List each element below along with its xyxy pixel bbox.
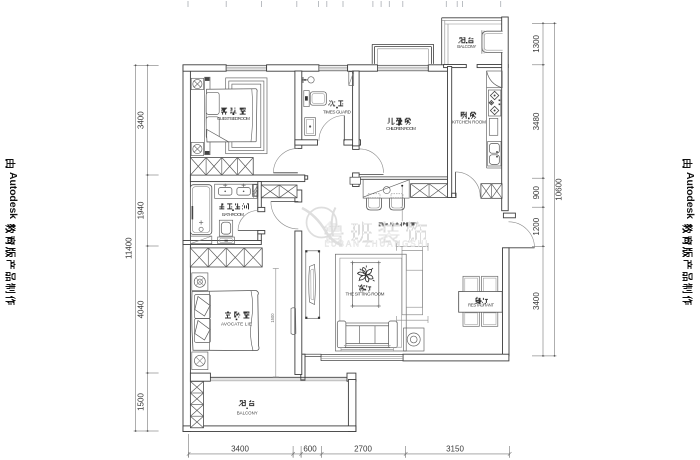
- svg-text:11400: 11400: [125, 237, 134, 259]
- svg-text:3480: 3480: [532, 112, 541, 130]
- svg-text:4040: 4040: [137, 300, 146, 318]
- svg-text:BALCONY: BALCONY: [237, 410, 258, 415]
- svg-text:Autodesk: Autodesk: [684, 172, 696, 219]
- svg-text:2700: 2700: [354, 445, 372, 454]
- svg-text:1300: 1300: [532, 34, 541, 52]
- svg-text:10600: 10600: [555, 178, 564, 201]
- svg-text:RESTAURANT: RESTAURANT: [468, 303, 494, 308]
- svg-text:CHILDREN ROOM: CHILDREN ROOM: [386, 126, 416, 131]
- svg-text:BALCONY: BALCONY: [457, 44, 476, 49]
- svg-text:Autodesk: Autodesk: [7, 172, 19, 219]
- svg-text:1940: 1940: [137, 201, 146, 219]
- svg-text:3400: 3400: [137, 111, 146, 129]
- svg-text:GUEST BEDROOM: GUEST BEDROOM: [217, 116, 250, 121]
- svg-text:AVOCATE LIE: AVOCATE LIE: [221, 321, 252, 326]
- svg-text:1500: 1500: [137, 393, 146, 411]
- svg-text:BATHROOM: BATHROOM: [222, 212, 244, 217]
- svg-text:1500: 1500: [270, 313, 275, 323]
- svg-text:3400: 3400: [231, 445, 249, 454]
- svg-text:TIMES GUARD: TIMES GUARD: [323, 109, 352, 114]
- svg-text:900: 900: [532, 185, 541, 199]
- svg-text:KITCHEN ROOM: KITCHEN ROOM: [452, 119, 486, 124]
- svg-text:3150: 3150: [446, 445, 464, 454]
- svg-text:3400: 3400: [532, 292, 541, 310]
- svg-text:LUBAN ZHUANGSHI: LUBAN ZHUANGSHI: [325, 240, 428, 249]
- svg-text:1200: 1200: [532, 217, 541, 235]
- svg-text:THE SITTING ROOM: THE SITTING ROOM: [346, 292, 385, 297]
- svg-text:600: 600: [303, 445, 317, 454]
